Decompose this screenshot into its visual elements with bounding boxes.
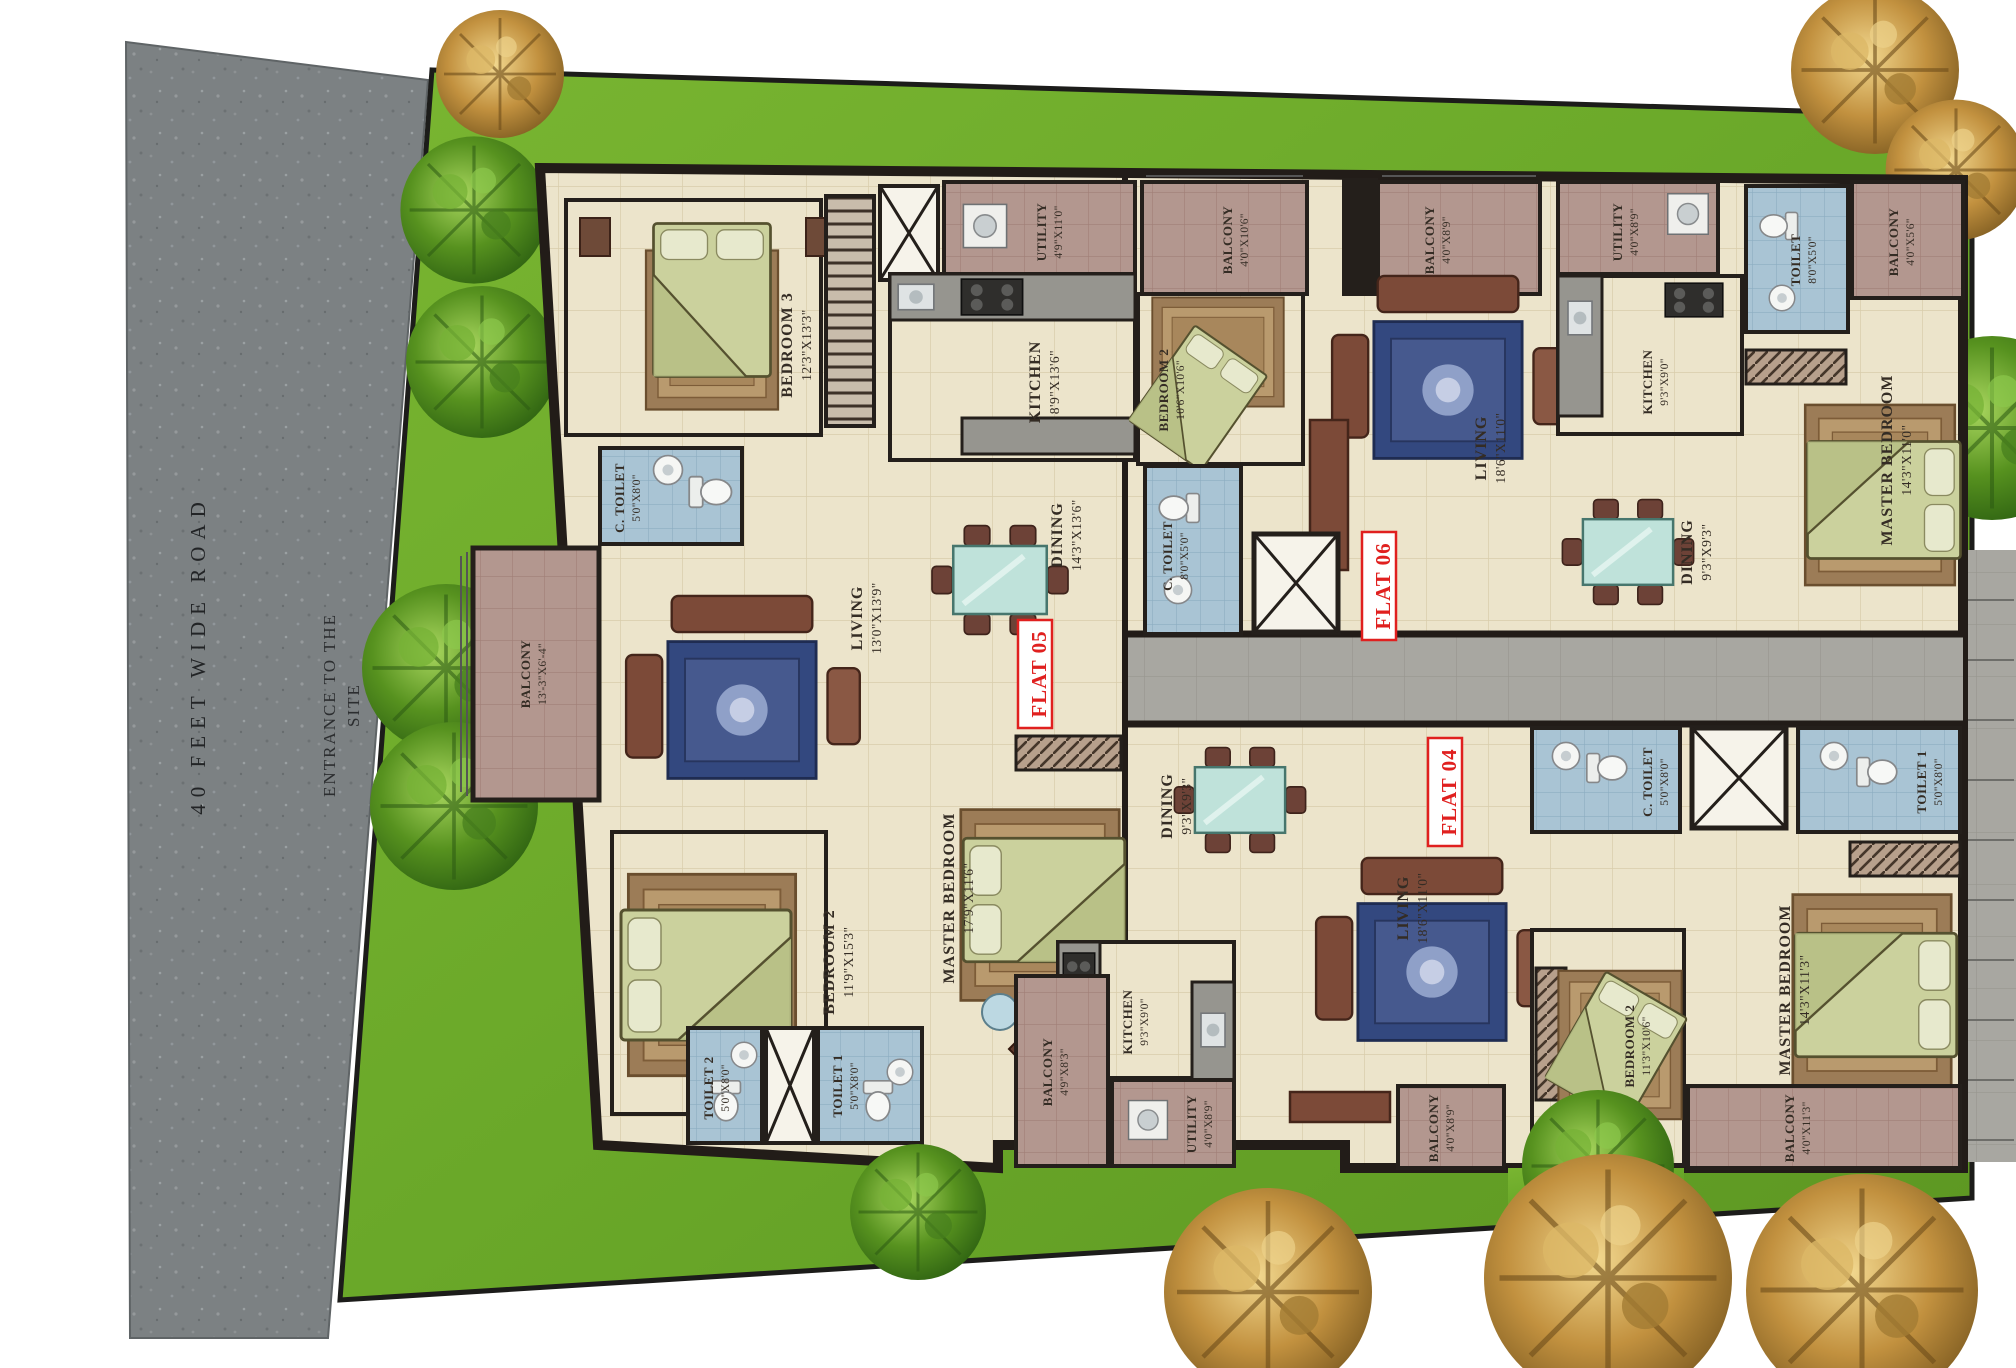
svg-text:BALCONY: BALCONY bbox=[1422, 206, 1437, 275]
entrance-label-line2: SITE bbox=[344, 683, 363, 727]
lift-top bbox=[880, 186, 938, 280]
svg-text:5'0"X8'0": 5'0"X8'0" bbox=[1659, 758, 1671, 806]
room-flat06-balcony3: BALCONY 4'0"X5'6" bbox=[1852, 182, 1963, 298]
svg-text:17'9"X11'6": 17'9"X11'6" bbox=[961, 862, 976, 933]
svg-text:18'6"X11'0": 18'6"X11'0" bbox=[1415, 872, 1430, 943]
svg-text:MASTER BEDROOM: MASTER BEDROOM bbox=[941, 813, 958, 984]
svg-text:C. TOILET: C. TOILET bbox=[1160, 521, 1175, 591]
entrance-label-line1: ENTRANCE TO THE bbox=[320, 613, 339, 797]
room-flat06-toilet: TOILET 8'0"X5'0" bbox=[1746, 186, 1848, 332]
room-flat05-toilet2: TOILET 2 5'0"X8'0" bbox=[688, 1028, 762, 1143]
room-flat05-ctoilet: C. TOILET 5'0"X8'0" bbox=[600, 448, 742, 544]
svg-text:KITCHEN: KITCHEN bbox=[1640, 349, 1655, 414]
svg-text:C. TOILET: C. TOILET bbox=[1640, 747, 1655, 817]
room-flat05-kitchen: KITCHEN 8'9"X13'6" bbox=[890, 274, 1135, 460]
svg-text:C. TOILET: C. TOILET bbox=[612, 463, 627, 533]
svg-text:5'0"X8'0": 5'0"X8'0" bbox=[720, 1064, 732, 1112]
room-flat06-ctoilet: C. TOILET 8'0"X5'0" bbox=[1145, 466, 1241, 634]
svg-text:TOILET: TOILET bbox=[1788, 234, 1803, 287]
room-flat05-utility: UTILITY 4'9"X11'0" bbox=[944, 182, 1135, 274]
svg-text:14'3"X11'3": 14'3"X11'3" bbox=[1797, 954, 1812, 1025]
room-flat04-utility: UTILITY 4'0"X8'9" bbox=[1112, 1080, 1234, 1166]
svg-text:DINING: DINING bbox=[1679, 519, 1696, 585]
svg-text:5'0"X8'0": 5'0"X8'0" bbox=[631, 474, 643, 522]
svg-text:BALCONY: BALCONY bbox=[1886, 208, 1901, 277]
lift-flat04 bbox=[1692, 728, 1786, 828]
svg-text:12'3"X13'3": 12'3"X13'3" bbox=[799, 309, 814, 381]
svg-text:KITCHEN: KITCHEN bbox=[1120, 989, 1135, 1054]
svg-text:BALCONY: BALCONY bbox=[1040, 1038, 1055, 1107]
svg-text:BEDROOM 2: BEDROOM 2 bbox=[1156, 349, 1171, 432]
svg-text:4'0"X8'9": 4'0"X8'9" bbox=[1441, 216, 1453, 264]
room-flat06-balcony1: BALCONY 4'0"X10'6" bbox=[1142, 176, 1307, 294]
svg-text:13'0"X13'9": 13'0"X13'9" bbox=[869, 582, 884, 654]
svg-text:UTILITY: UTILITY bbox=[1034, 203, 1049, 262]
svg-text:DINING: DINING bbox=[1159, 773, 1176, 839]
svg-text:5'0"X8'0": 5'0"X8'0" bbox=[849, 1062, 861, 1110]
svg-text:TOILET 1: TOILET 1 bbox=[1914, 750, 1929, 813]
floor-plan-canvas: 40 FEET WIDE ROAD ENTRANCE TO THE SITE bbox=[0, 0, 2016, 1368]
room-flat05-bedroom3: BEDROOM 3 12'3"X13'3" bbox=[566, 200, 836, 435]
svg-text:MASTER BEDROOM: MASTER BEDROOM bbox=[1879, 375, 1896, 546]
svg-text:LIVING: LIVING bbox=[1395, 876, 1412, 941]
lift-center bbox=[1254, 534, 1338, 632]
svg-text:9'3"X9'0": 9'3"X9'0" bbox=[1139, 998, 1151, 1046]
svg-text:4'0"X8'9": 4'0"X8'9" bbox=[1445, 1104, 1457, 1152]
room-flat06-bedroom2: BEDROOM 2 10'6"X10'6" bbox=[1129, 294, 1303, 471]
svg-text:13'-3"X6'-4": 13'-3"X6'-4" bbox=[537, 643, 549, 705]
svg-text:MASTER BEDROOM: MASTER BEDROOM bbox=[1777, 905, 1794, 1076]
svg-text:FLAT 04: FLAT 04 bbox=[1437, 748, 1461, 835]
svg-text:LIVING: LIVING bbox=[1473, 416, 1490, 481]
room-flat05-toilet1: TOILET 1 5'0"X8'0" bbox=[818, 1028, 922, 1143]
flat04-tag: FLAT 04 bbox=[1428, 738, 1462, 846]
svg-text:14'3"X13'6": 14'3"X13'6" bbox=[1069, 499, 1084, 571]
room-flat04-ctoilet: C. TOILET 5'0"X8'0" bbox=[1532, 728, 1680, 832]
svg-text:11'3"X10'6": 11'3"X10'6" bbox=[1641, 1016, 1653, 1075]
svg-text:8'9"X13'6": 8'9"X13'6" bbox=[1047, 350, 1062, 414]
svg-text:FLAT 06: FLAT 06 bbox=[1371, 542, 1395, 629]
svg-text:TOILET 2: TOILET 2 bbox=[701, 1056, 716, 1119]
svg-text:BALCONY: BALCONY bbox=[1426, 1094, 1441, 1163]
svg-text:KITCHEN: KITCHEN bbox=[1027, 341, 1044, 424]
flat06-tag: FLAT 06 bbox=[1362, 532, 1396, 640]
svg-text:BEDROOM 2: BEDROOM 2 bbox=[821, 909, 838, 1014]
svg-text:4'9"X8'3": 4'9"X8'3" bbox=[1059, 1048, 1071, 1096]
svg-text:4'9"X11'0": 4'9"X11'0" bbox=[1053, 205, 1065, 258]
svg-text:11'9"X15'3": 11'9"X15'3" bbox=[841, 926, 856, 997]
svg-text:UTILITY: UTILITY bbox=[1610, 203, 1625, 262]
room-flat06-kitchen: KITCHEN 9'3"X9'0" bbox=[1558, 276, 1742, 434]
svg-text:8'0"X5'0": 8'0"X5'0" bbox=[1807, 236, 1819, 284]
svg-text:4'0"X10'6": 4'0"X10'6" bbox=[1239, 213, 1251, 267]
svg-text:LIVING: LIVING bbox=[849, 586, 866, 651]
room-flat06-utility: UTILITY 4'0"X8'9" bbox=[1558, 182, 1718, 274]
svg-text:DINING: DINING bbox=[1049, 502, 1066, 568]
room-flat04-balcony2: BALCONY 4'0"X8'9" bbox=[1398, 1086, 1504, 1168]
svg-text:9'3"X9'3": 9'3"X9'3" bbox=[1179, 777, 1194, 834]
svg-text:9'3"X9'0": 9'3"X9'0" bbox=[1659, 358, 1671, 406]
room-flat04-toilet1: TOILET 1 5'0"X8'0" bbox=[1798, 728, 1960, 832]
svg-text:5'0"X8'0": 5'0"X8'0" bbox=[1933, 758, 1945, 806]
svg-text:14'3"X11'0": 14'3"X11'0" bbox=[1899, 424, 1914, 495]
svg-text:UTILITY: UTILITY bbox=[1184, 1095, 1199, 1154]
svg-text:4'0"X5'6": 4'0"X5'6" bbox=[1905, 218, 1917, 266]
staircase bbox=[826, 196, 874, 426]
svg-text:18'6"X11'0": 18'6"X11'0" bbox=[1493, 412, 1508, 483]
svg-text:4'0"X11'3": 4'0"X11'3" bbox=[1801, 1101, 1813, 1154]
flat05-tag: FLAT 05 bbox=[1018, 620, 1052, 728]
room-flat05-balcony: BALCONY 13'-3"X6'-4" bbox=[461, 548, 599, 800]
svg-text:BEDROOM 2: BEDROOM 2 bbox=[1622, 1005, 1637, 1088]
svg-text:8'0"X5'0": 8'0"X5'0" bbox=[1179, 532, 1191, 580]
svg-text:BALCONY: BALCONY bbox=[518, 640, 533, 709]
svg-text:FLAT 05: FLAT 05 bbox=[1027, 630, 1051, 717]
svg-text:BALCONY: BALCONY bbox=[1220, 206, 1235, 275]
svg-text:BALCONY: BALCONY bbox=[1782, 1094, 1797, 1163]
lift-bottom bbox=[766, 1028, 814, 1143]
svg-text:4'0"X8'9": 4'0"X8'9" bbox=[1629, 208, 1641, 256]
svg-text:TOILET 1: TOILET 1 bbox=[830, 1054, 845, 1117]
svg-text:10'6"X10'6": 10'6"X10'6" bbox=[1175, 360, 1187, 420]
svg-text:4'0"X8'9": 4'0"X8'9" bbox=[1203, 1100, 1215, 1148]
room-label: BEDROOM 3 bbox=[779, 292, 796, 397]
room-flat04-balcony3: BALCONY 4'0"X11'3" bbox=[1688, 1086, 1960, 1168]
road-label: 40 FEET WIDE ROAD bbox=[186, 495, 210, 814]
room-flat04-balcony1: BALCONY 4'9"X8'3" bbox=[1016, 976, 1108, 1166]
svg-text:9'3"X9'3": 9'3"X9'3" bbox=[1699, 523, 1714, 580]
